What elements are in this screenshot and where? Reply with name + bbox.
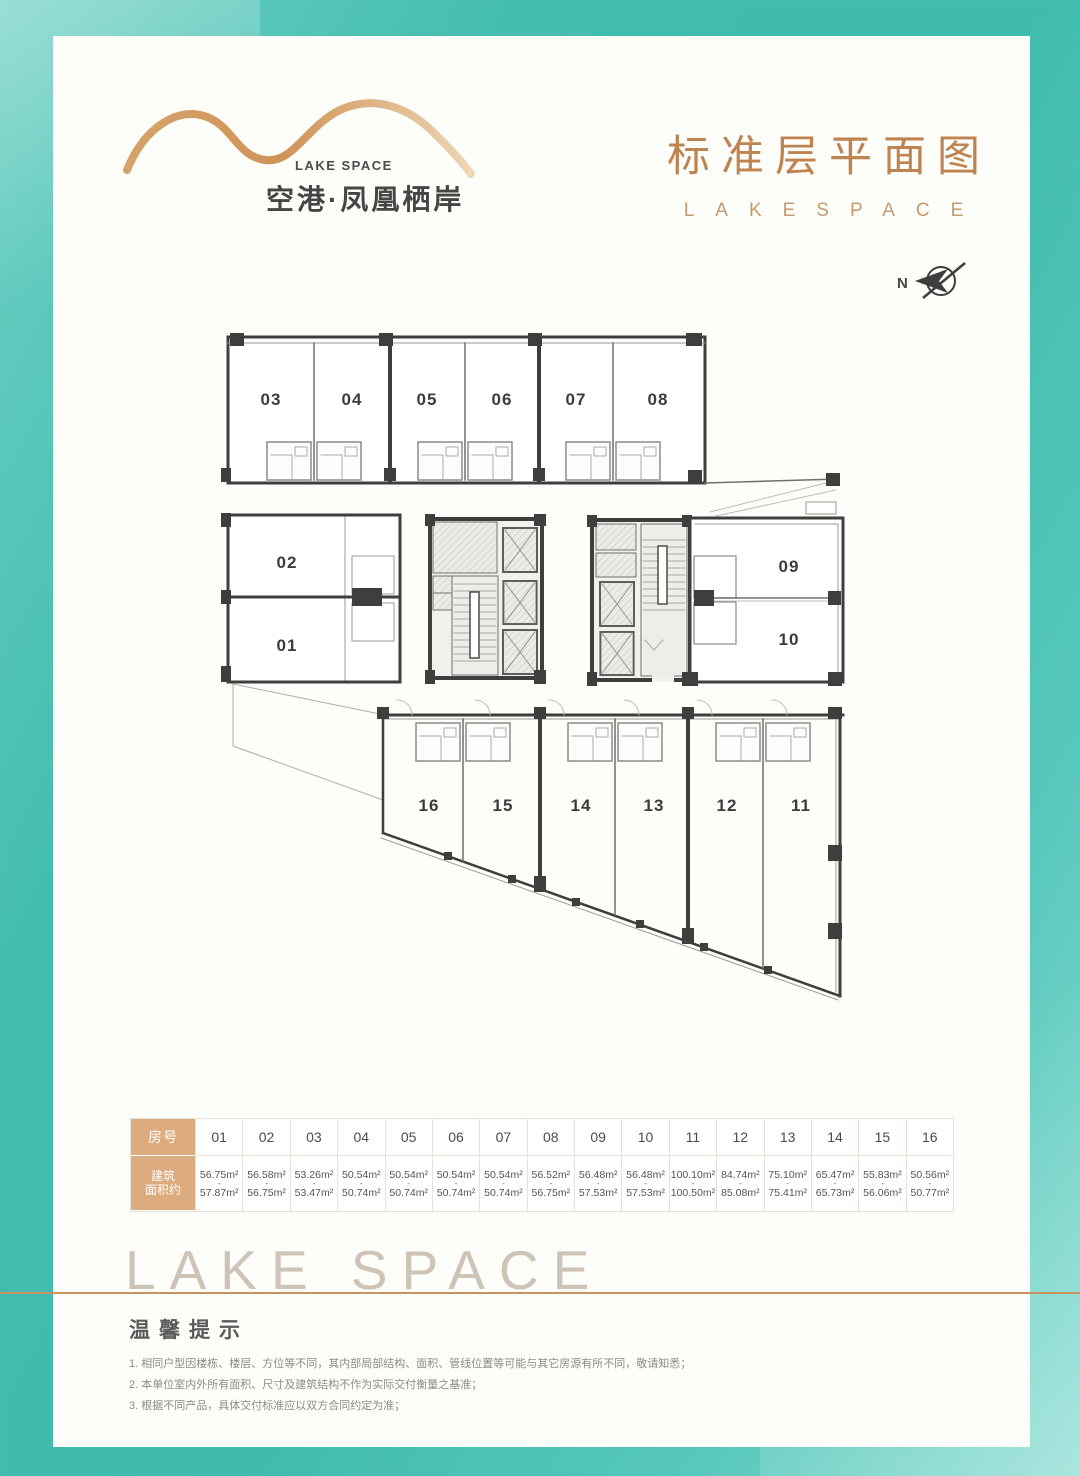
table-column-13: 1375.10m²-75.41m²: [764, 1119, 811, 1211]
plan-walls: [221, 333, 843, 1000]
table-column-03: 0353.26m²-53.47m²: [290, 1119, 337, 1211]
table-column-12: 1284.74m²-85.08m²: [716, 1119, 763, 1211]
table-column-16: 1650.56m²-50.77m²: [906, 1119, 953, 1211]
table-column-01: 0156.75m²-57.87m²: [195, 1119, 242, 1211]
table-header-column: 房号 建筑 面积约: [131, 1119, 195, 1211]
unit-label-10: 10: [779, 630, 800, 649]
unit-label-14: 14: [571, 796, 592, 815]
poster-card: LAKE SPACE 空港·凤凰栖岸 标准层平面图 LAKESPACE N: [53, 36, 1030, 1447]
brand-name-cn: 空港·凤凰栖岸: [266, 178, 464, 218]
table-column-07: 0750.54m²-50.74m²: [479, 1119, 526, 1211]
unit-label-08: 08: [648, 390, 669, 409]
area-header: 建筑 面积约: [131, 1156, 195, 1211]
tip-note-2: 2. 本单位室内外所有面积、尺寸及建筑结构不作为实际交付衡量之基准；: [129, 1375, 691, 1396]
unit-label-16: 16: [419, 796, 440, 815]
unit-label-12: 12: [717, 796, 738, 815]
north-indicator: N: [891, 250, 983, 314]
brand-name: LAKE SPACE: [295, 158, 393, 173]
unit-label-06: 06: [492, 390, 513, 409]
tips-notes: 1. 相同户型因楼栋、楼层、方位等不同，其内部局部结构、面积、管线位置等可能与其…: [129, 1354, 691, 1417]
table-column-05: 0550.54m²-50.74m²: [385, 1119, 432, 1211]
table-column-11: 11100.10m²-100.50m²: [669, 1119, 716, 1211]
room-header: 房号: [131, 1119, 195, 1156]
brand-logo: LAKE SPACE 空港·凤凰栖岸: [123, 96, 483, 256]
unit-label-02: 02: [277, 553, 298, 572]
floor-plan: 03 04 05 06 07 08 02 01 09 10 16 15 14 1…: [215, 330, 865, 1040]
table-column-04: 0450.54m²-50.74m²: [337, 1119, 384, 1211]
table-column-15: 1555.83m²-56.06m²: [858, 1119, 905, 1211]
north-label: N: [897, 275, 908, 292]
compass-icon: [915, 263, 965, 298]
page-title: 标准层平面图: [651, 122, 996, 184]
divider-line: [0, 1292, 1080, 1294]
unit-label-05: 05: [417, 390, 438, 409]
title-block: 标准层平面图 LAKESPACE: [651, 122, 996, 222]
unit-label-13: 13: [644, 796, 665, 815]
tip-note-3: 3. 根据不同产品，具体交付标准应以双方合同约定为准；: [129, 1396, 691, 1417]
unit-label-11: 11: [791, 796, 811, 815]
unit-label-04: 04: [342, 390, 363, 409]
tip-note-1: 1. 相同户型因楼栋、楼层、方位等不同，其内部局部结构、面积、管线位置等可能与其…: [129, 1354, 691, 1375]
unit-label-03: 03: [261, 390, 282, 409]
table-column-10: 1056.48m²-57.53m²: [621, 1119, 668, 1211]
table-column-02: 0256.58m²-56.75m²: [242, 1119, 289, 1211]
page-subtitle: LAKESPACE: [651, 200, 996, 222]
unit-label-09: 09: [779, 557, 800, 576]
unit-label-01: 01: [277, 636, 298, 655]
table-column-14: 1465.47m²-65.73m²: [811, 1119, 858, 1211]
area-table: 房号 建筑 面积约 0156.75m²-57.87m² 0256.58m²-56…: [130, 1118, 954, 1212]
tips-title: 温馨提示: [129, 1314, 249, 1344]
table-column-09: 0956.48m²-57.53m²: [574, 1119, 621, 1211]
unit-label-15: 15: [493, 796, 514, 815]
table-column-06: 0650.54m²-50.74m²: [432, 1119, 479, 1211]
unit-label-07: 07: [566, 390, 587, 409]
table-column-08: 0856.52m²-56.75m²: [527, 1119, 574, 1211]
